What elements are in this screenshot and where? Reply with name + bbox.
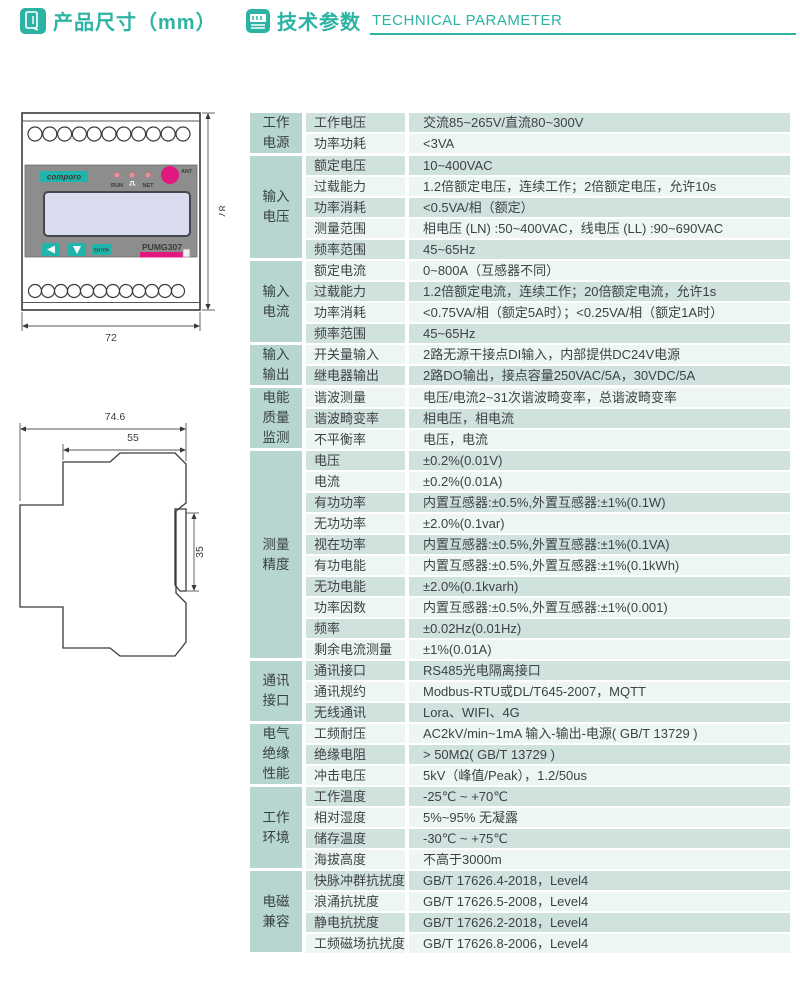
parameter-name: 冲击电压 xyxy=(306,766,405,785)
table-row: 过载能力1.2倍额定电流，连续工作；20倍额定电流，允许1s xyxy=(306,282,790,301)
parameter-name: 海拔高度 xyxy=(306,850,405,869)
table-row: 工作电压交流85~265V/直流80~300V xyxy=(306,113,790,132)
parameter-name: 有功功率 xyxy=(306,493,405,512)
ant-indicator xyxy=(161,166,179,184)
parameter-value: ±0.2%(0.01A) xyxy=(409,472,790,491)
parameter-name: 工频耐压 xyxy=(306,724,405,743)
table-row: 通讯规约Modbus-RTU或DL/T645-2007，MQTT xyxy=(306,682,790,701)
parameter-name: 相对湿度 xyxy=(306,808,405,827)
parameter-name: 频率范围 xyxy=(306,240,405,259)
table-group: 工作电源工作电压交流85~265V/直流80~300V功率功耗<3VA xyxy=(250,113,790,156)
parameter-value: 2路DO输出，接点容量250VAC/5A，30VDC/5A xyxy=(409,366,790,385)
parameter-name: 剩余电流测量 xyxy=(306,640,405,659)
table-row: 功率功耗<3VA xyxy=(306,134,790,153)
parameter-name: 浪涌抗扰度 xyxy=(306,892,405,911)
table-row: 冲击电压5kV（峰值/Peak），1.2/50us xyxy=(306,766,790,785)
model-label: PUMG307 xyxy=(142,242,182,252)
table-row: 频率范围45~65Hz xyxy=(306,240,790,259)
category-cell: 输入输出 xyxy=(250,345,302,385)
parameter-name: 过载能力 xyxy=(306,282,405,301)
parameter-name: 过载能力 xyxy=(306,177,405,196)
model-accent-bar xyxy=(140,252,183,258)
parameter-value: 内置互感器:±0.5%,外置互感器:±1%(0.1W) xyxy=(409,493,790,512)
parameter-name: 电流 xyxy=(306,472,405,491)
ant-label: ANT xyxy=(181,169,193,175)
table-group: 输入电压额定电压10~400VAC过载能力1.2倍额定电压，连续工作；2倍额定电… xyxy=(250,156,790,261)
category-cell: 通讯接口 xyxy=(250,661,302,721)
parameter-value: -30℃ ~ +75℃ xyxy=(409,829,790,848)
tech-table: 工作电源工作电压交流85~265V/直流80~300V功率功耗<3VA输入电压额… xyxy=(250,113,790,955)
parameter-icon xyxy=(246,9,270,33)
parameters-subtitle: TECHNICAL PARAMETER xyxy=(372,12,562,29)
category-cell: 输入电压 xyxy=(250,156,302,258)
category-cell: 电气绝缘性能 xyxy=(250,724,302,784)
category-cell: 输入电流 xyxy=(250,261,302,342)
led-run-label: RUN xyxy=(111,183,123,189)
parameter-value: <3VA xyxy=(409,134,790,153)
table-row: 有功电能内置互感器:±0.5%,外置互感器:±1%(0.1kWh) xyxy=(306,556,790,575)
category-cell: 电能质量监测 xyxy=(250,388,302,448)
terminal-circle xyxy=(146,285,159,298)
parameter-name: 功率消耗 xyxy=(306,198,405,217)
parameter-value: Lora、WIFI、4G xyxy=(409,703,790,722)
table-row: 无功电能±2.0%(0.1kvarh) xyxy=(306,577,790,596)
table-row: 浪涌抗扰度GB/T 17626.5-2008，Level4 xyxy=(306,892,790,911)
parameter-name: 频率范围 xyxy=(306,324,405,343)
terminal-circle xyxy=(159,285,172,298)
parameter-name: 谐波畸变率 xyxy=(306,409,405,428)
parameter-name: 绝缘电阻 xyxy=(306,745,405,764)
parameter-name: 工作温度 xyxy=(306,787,405,806)
parameter-value: 不高于3000m xyxy=(409,850,790,869)
parameter-name: 工作电压 xyxy=(306,113,405,132)
terminal-circle xyxy=(117,127,131,141)
table-row: 功率因数内置互感器:±0.5%,外置互感器:±1%(0.001) xyxy=(306,598,790,617)
parameter-value: Modbus-RTU或DL/T645-2007，MQTT xyxy=(409,682,790,701)
parameter-value: 相电压 (LN) :50~400VAC，线电压 (LL) :90~690VAC xyxy=(409,219,790,238)
terminal-circle xyxy=(133,285,146,298)
parameter-value: 交流85~265V/直流80~300V xyxy=(409,113,790,132)
side-profile xyxy=(20,453,186,656)
dimensions-icon xyxy=(20,8,46,34)
table-row: 继电器输出2路DO输出，接点容量250VAC/5A，30VDC/5A xyxy=(306,366,790,385)
parameter-value: 电压，电流 xyxy=(409,430,790,449)
category-cell: 工作电源 xyxy=(250,113,302,153)
seal-mark xyxy=(183,249,190,257)
parameter-value: 45~65Hz xyxy=(409,324,790,343)
table-row: 过载能力1.2倍额定电压，连续工作；2倍额定电压，允许10s xyxy=(306,177,790,196)
parameter-value: <0.5VA/相（额定） xyxy=(409,198,790,217)
side-view-drawing: 74.6 55 35 xyxy=(5,405,220,705)
top-terminals xyxy=(28,127,190,141)
table-group: 输入输出开关量输入2路无源干接点DI输入，内部提供DC24V电源继电器输出2路D… xyxy=(250,345,790,388)
table-row: 视在功率内置互感器:±0.5%,外置互感器:±1%(0.1VA) xyxy=(306,535,790,554)
terminal-circle xyxy=(161,127,175,141)
front-view-drawing: comporo RUN NET ANT ENTER PUMG307 87 xyxy=(10,105,225,345)
parameter-value: GB/T 17626.5-2008，Level4 xyxy=(409,892,790,911)
table-row: 相对湿度5%~95% 无凝露 xyxy=(306,808,790,827)
dim-height-label: 87 xyxy=(216,206,225,218)
datasheet-page: 产品尺寸（mm） 技术参数 TECHNICAL PARAMETER compor… xyxy=(0,0,800,986)
parameters-title: 技术参数 xyxy=(277,6,361,35)
dim-body-width-label: 55 xyxy=(127,432,139,444)
table-row: 频率范围45~65Hz xyxy=(306,324,790,343)
table-group: 电能质量监测谐波测量电压/电流2~31次谐波畸变率，总谐波畸变率谐波畸变率相电压… xyxy=(250,388,790,451)
terminal-circle xyxy=(107,285,120,298)
table-row: 无线通讯Lora、WIFI、4G xyxy=(306,703,790,722)
table-row: 剩余电流测量±1%(0.01A) xyxy=(306,640,790,659)
table-row: 快脉冲群抗扰度GB/T 17626.4-2018，Level4 xyxy=(306,871,790,890)
terminal-circle xyxy=(94,285,107,298)
terminal-circle xyxy=(146,127,160,141)
parameter-value: AC2kV/min~1mA 输入-输出-电源( GB/T 13729 ) xyxy=(409,724,790,743)
parameter-name: 快脉冲群抗扰度 xyxy=(306,871,405,890)
parameter-value: -25℃ ~ +70℃ xyxy=(409,787,790,806)
parameter-name: 有功电能 xyxy=(306,556,405,575)
table-row: 额定电压10~400VAC xyxy=(306,156,790,175)
section-header-parameters: 技术参数 TECHNICAL PARAMETER xyxy=(246,6,562,35)
table-row: 不平衡率电压，电流 xyxy=(306,430,790,449)
table-row: 有功功率内置互感器:±0.5%,外置互感器:±1%(0.1W) xyxy=(306,493,790,512)
parameter-value: ±2.0%(0.1var) xyxy=(409,514,790,533)
parameter-value: GB/T 17626.8-2006，Level4 xyxy=(409,934,790,953)
enter-button-label: ENTER xyxy=(94,248,110,253)
parameter-value: 10~400VAC xyxy=(409,156,790,175)
table-row: 开关量输入2路无源干接点DI输入，内部提供DC24V电源 xyxy=(306,345,790,364)
table-group: 电气绝缘性能工频耐压AC2kV/min~1mA 输入-输出-电源( GB/T 1… xyxy=(250,724,790,787)
parameter-value: <0.75VA/相（额定5A时）；<0.25VA/相（额定1A时） xyxy=(409,303,790,322)
lcd-screen xyxy=(44,192,190,236)
terminal-circle xyxy=(68,285,81,298)
table-group: 通讯接口通讯接口RS485光电隔离接口通讯规约Modbus-RTU或DL/T64… xyxy=(250,661,790,724)
parameter-name: 额定电流 xyxy=(306,261,405,280)
parameter-name: 谐波测量 xyxy=(306,388,405,407)
parameter-name: 无功电能 xyxy=(306,577,405,596)
parameter-value: 45~65Hz xyxy=(409,240,790,259)
parameter-name: 电压 xyxy=(306,451,405,470)
table-group: 电磁兼容快脉冲群抗扰度GB/T 17626.4-2018，Level4浪涌抗扰度… xyxy=(250,871,790,955)
parameter-name: 频率 xyxy=(306,619,405,638)
table-row: 绝缘电阻> 50MΩ( GB/T 13729 ) xyxy=(306,745,790,764)
dimensions-title: 产品尺寸（mm） xyxy=(53,6,217,35)
parameter-name: 无线通讯 xyxy=(306,703,405,722)
parameter-name: 功率因数 xyxy=(306,598,405,617)
parameter-value: > 50MΩ( GB/T 13729 ) xyxy=(409,745,790,764)
parameter-value: ±1%(0.01A) xyxy=(409,640,790,659)
dim-total-width-label: 74.6 xyxy=(105,411,126,423)
table-row: 工作温度-25℃ ~ +70℃ xyxy=(306,787,790,806)
brand-logo-text: comporo xyxy=(47,173,81,182)
terminal-circle xyxy=(102,127,116,141)
parameter-value: 相电压，相电流 xyxy=(409,409,790,428)
led-net-label: NET xyxy=(143,183,155,189)
table-row: 电流±0.2%(0.01A) xyxy=(306,472,790,491)
terminal-circle xyxy=(29,285,42,298)
parameter-value: 5%~95% 无凝露 xyxy=(409,808,790,827)
parameter-value: GB/T 17626.2-2018，Level4 xyxy=(409,913,790,932)
table-row: 额定电流0~800A（互感器不同） xyxy=(306,261,790,280)
terminal-circle xyxy=(58,127,72,141)
parameter-name: 视在功率 xyxy=(306,535,405,554)
terminal-circle xyxy=(72,127,86,141)
parameter-name: 功率功耗 xyxy=(306,134,405,153)
dim-width-label: 72 xyxy=(105,332,117,344)
terminal-circle xyxy=(43,127,57,141)
parameter-name: 通讯规约 xyxy=(306,682,405,701)
table-row: 功率消耗<0.5VA/相（额定） xyxy=(306,198,790,217)
parameter-value: ±2.0%(0.1kvarh) xyxy=(409,577,790,596)
led-run xyxy=(114,172,120,178)
table-row: 静电抗扰度GB/T 17626.2-2018，Level4 xyxy=(306,913,790,932)
parameter-name: 不平衡率 xyxy=(306,430,405,449)
parameter-name: 继电器输出 xyxy=(306,366,405,385)
parameter-value: RS485光电隔离接口 xyxy=(409,661,790,680)
terminal-circle xyxy=(176,127,190,141)
led-pulse xyxy=(129,172,135,178)
parameter-value: 0~800A（互感器不同） xyxy=(409,261,790,280)
parameter-name: 静电抗扰度 xyxy=(306,913,405,932)
table-group: 输入电流额定电流0~800A（互感器不同）过载能力1.2倍额定电流，连续工作；2… xyxy=(250,261,790,345)
category-cell: 测量精度 xyxy=(250,451,302,658)
table-group: 工作环境工作温度-25℃ ~ +70℃相对湿度5%~95% 无凝露储存温度-30… xyxy=(250,787,790,871)
table-row: 谐波畸变率相电压，相电流 xyxy=(306,409,790,428)
parameter-value: 1.2倍额定电压，连续工作；2倍额定电压，允许10s xyxy=(409,177,790,196)
dim-rail-label: 35 xyxy=(194,546,206,558)
parameter-name: 储存温度 xyxy=(306,829,405,848)
parameter-value: 内置互感器:±0.5%,外置互感器:±1%(0.1VA) xyxy=(409,535,790,554)
header-underline xyxy=(370,33,796,35)
table-row: 工频磁场抗扰度GB/T 17626.8-2006，Level4 xyxy=(306,934,790,953)
parameter-name: 测量范围 xyxy=(306,219,405,238)
parameter-value: GB/T 17626.4-2018，Level4 xyxy=(409,871,790,890)
table-group: 测量精度电压±0.2%(0.01V)电流±0.2%(0.01A)有功功率内置互感… xyxy=(250,451,790,661)
table-row: 谐波测量电压/电流2~31次谐波畸变率，总谐波畸变率 xyxy=(306,388,790,407)
table-row: 海拔高度不高于3000m xyxy=(306,850,790,869)
terminal-circle xyxy=(87,127,101,141)
terminal-circle xyxy=(120,285,133,298)
terminal-circle xyxy=(81,285,94,298)
terminal-circle xyxy=(55,285,68,298)
category-cell: 工作环境 xyxy=(250,787,302,868)
parameter-value: 2路无源干接点DI输入，内部提供DC24V电源 xyxy=(409,345,790,364)
section-header-dimensions: 产品尺寸（mm） xyxy=(20,6,217,35)
parameter-value: 内置互感器:±0.5%,外置互感器:±1%(0.001) xyxy=(409,598,790,617)
category-cell: 电磁兼容 xyxy=(250,871,302,952)
table-row: 功率消耗<0.75VA/相（额定5A时）；<0.25VA/相（额定1A时） xyxy=(306,303,790,322)
table-row: 测量范围相电压 (LN) :50~400VAC，线电压 (LL) :90~690… xyxy=(306,219,790,238)
parameter-name: 工频磁场抗扰度 xyxy=(306,934,405,953)
table-row: 工频耐压AC2kV/min~1mA 输入-输出-电源( GB/T 13729 ) xyxy=(306,724,790,743)
parameter-value: 1.2倍额定电流，连续工作；20倍额定电流，允许1s xyxy=(409,282,790,301)
parameter-value: 电压/电流2~31次谐波畸变率，总谐波畸变率 xyxy=(409,388,790,407)
table-row: 频率±0.02Hz(0.01Hz) xyxy=(306,619,790,638)
parameter-value: 5kV（峰值/Peak），1.2/50us xyxy=(409,766,790,785)
parameter-value: 内置互感器:±0.5%,外置互感器:±1%(0.1kWh) xyxy=(409,556,790,575)
parameter-name: 无功功率 xyxy=(306,514,405,533)
terminal-circle xyxy=(132,127,146,141)
parameter-value: ±0.2%(0.01V) xyxy=(409,451,790,470)
table-row: 电压±0.2%(0.01V) xyxy=(306,451,790,470)
terminal-circle xyxy=(42,285,55,298)
led-net xyxy=(145,172,151,178)
parameter-name: 功率消耗 xyxy=(306,303,405,322)
parameter-name: 额定电压 xyxy=(306,156,405,175)
table-row: 无功功率±2.0%(0.1var) xyxy=(306,514,790,533)
table-row: 通讯接口RS485光电隔离接口 xyxy=(306,661,790,680)
parameter-name: 开关量输入 xyxy=(306,345,405,364)
parameter-name: 通讯接口 xyxy=(306,661,405,680)
terminal-circle xyxy=(28,127,42,141)
parameter-value: ±0.02Hz(0.01Hz) xyxy=(409,619,790,638)
table-row: 储存温度-30℃ ~ +75℃ xyxy=(306,829,790,848)
terminal-circle xyxy=(172,285,185,298)
